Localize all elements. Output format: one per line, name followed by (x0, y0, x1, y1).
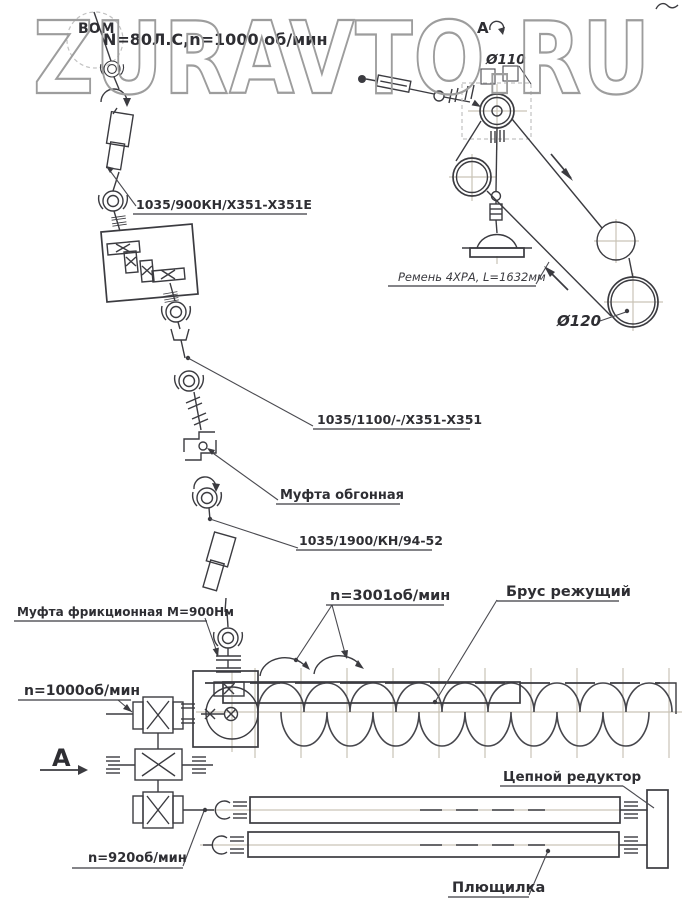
overrunning-clutch-label: Муфта обгонная (280, 488, 404, 503)
telescopic-shaft-2 (199, 532, 236, 592)
driveshaft-3-label: 1035/1900/КН/94-52 (299, 533, 443, 548)
conditioner-label: Плющилка (452, 880, 545, 896)
corner-squiggle (656, 4, 678, 9)
driveshaft-2-label: 1035/1100/-/Х351-Х351 (317, 412, 482, 427)
friction-clutch-label: Муфта фрикционная М=900Нм (17, 605, 234, 619)
roller-speed-label: n=920об/мин (88, 851, 187, 866)
watermark-text: ZURAVTO.RU (33, 0, 651, 117)
rollers (203, 797, 647, 857)
auger-speed-label: n=3001об/мин (330, 588, 450, 604)
belt-spec-label: Ремень 4ХРА, L=1632мм (398, 270, 546, 284)
auger (205, 656, 676, 746)
chain-reducer-label: Цепной редуктор (503, 769, 642, 785)
friction-clutch-symbol (216, 656, 241, 672)
kinematic-diagram: ВОМ N=80Л.С,n=1000 об/мин 1035/900КН/Х35… (0, 0, 685, 913)
middle-driveline (162, 302, 208, 430)
telescopic-shaft-1 (103, 112, 133, 171)
cutter-bar-label: Брус режущий (506, 584, 631, 600)
driveshaft-1-label: 1035/900КН/Х351-Х351Е (136, 197, 312, 212)
view-letter: А (52, 744, 71, 772)
chain-reducer-box (647, 790, 668, 868)
bevel-gearbox (101, 224, 198, 302)
telescopic-spline (186, 392, 208, 430)
gearbox-column (106, 697, 214, 828)
large-pulley-dia-label: Ø120 (556, 312, 601, 330)
overrunning-clutch-symbol (184, 432, 216, 460)
main-gearbox-speed-label: n=1000об/мин (24, 683, 140, 699)
lower-driveline (193, 477, 243, 656)
